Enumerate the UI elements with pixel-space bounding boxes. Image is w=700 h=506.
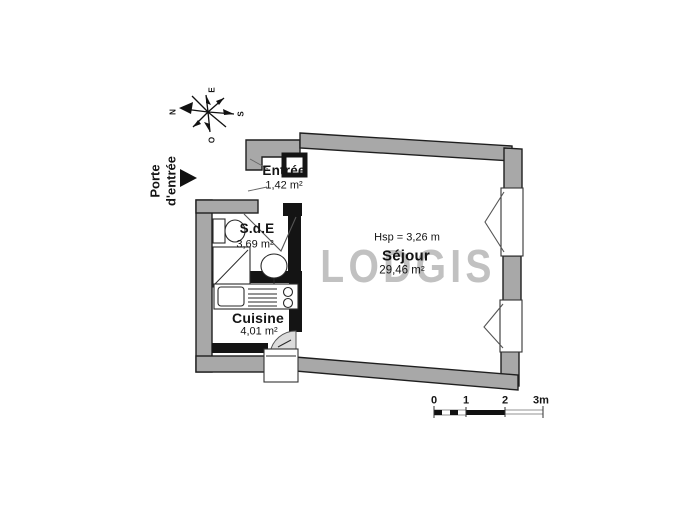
window-upper <box>501 188 523 256</box>
compass-west-label: O <box>207 137 216 143</box>
compass-north-label: N <box>168 109 177 115</box>
entrance-door-label: Porte d'entrée <box>147 154 178 208</box>
bottom-wall <box>295 357 518 390</box>
scale-bar <box>434 406 543 418</box>
sde-room-label: S.d.E <box>240 221 275 237</box>
top-wall <box>300 133 512 161</box>
left-wall <box>196 200 212 372</box>
scale-label-2: 2 <box>502 395 508 408</box>
washbasin-icon <box>261 254 287 278</box>
burner-icon <box>284 288 293 297</box>
floorplan-drawing <box>0 0 700 506</box>
sejour-area-label: 29,46 m² <box>379 264 424 277</box>
kitchen-bottom-inner-wall <box>212 343 268 353</box>
entree-room-label: Entrée <box>262 163 305 179</box>
cuisine-area-label: 4,01 m² <box>240 326 277 339</box>
entree-area-leader-line <box>248 187 267 191</box>
scale-label-1: 1 <box>463 395 469 408</box>
scale-label-0: 0 <box>431 395 437 408</box>
sde-top-wall <box>196 200 258 213</box>
wc-tank-icon <box>213 219 225 243</box>
french-door <box>264 349 298 382</box>
sejour-room-label: Séjour <box>382 247 430 264</box>
kitchen-fixtures <box>214 284 298 309</box>
compass-rose-icon <box>179 95 234 132</box>
compass-south-label: S <box>236 111 245 116</box>
kitchen-bottom-wall <box>196 356 268 372</box>
sejour-ceiling-height-label: Hsp = 3,26 m <box>374 232 440 245</box>
right-wall-upper <box>504 148 522 190</box>
cuisine-room-label: Cuisine <box>232 310 284 326</box>
entrance-arrow-icon <box>180 169 197 187</box>
window-lower <box>500 300 522 352</box>
scale-label-3m: 3m <box>533 395 549 408</box>
right-wall-middle <box>503 256 521 302</box>
burner-icon <box>284 299 293 308</box>
sde-area-label: 3,69 m² <box>236 239 273 252</box>
compass-east-label: E <box>207 87 216 92</box>
floorplan-page: LODGIS <box>0 0 700 506</box>
kitchen-sink-icon <box>218 287 244 306</box>
entree-area-label: 1,42 m² <box>265 180 302 193</box>
